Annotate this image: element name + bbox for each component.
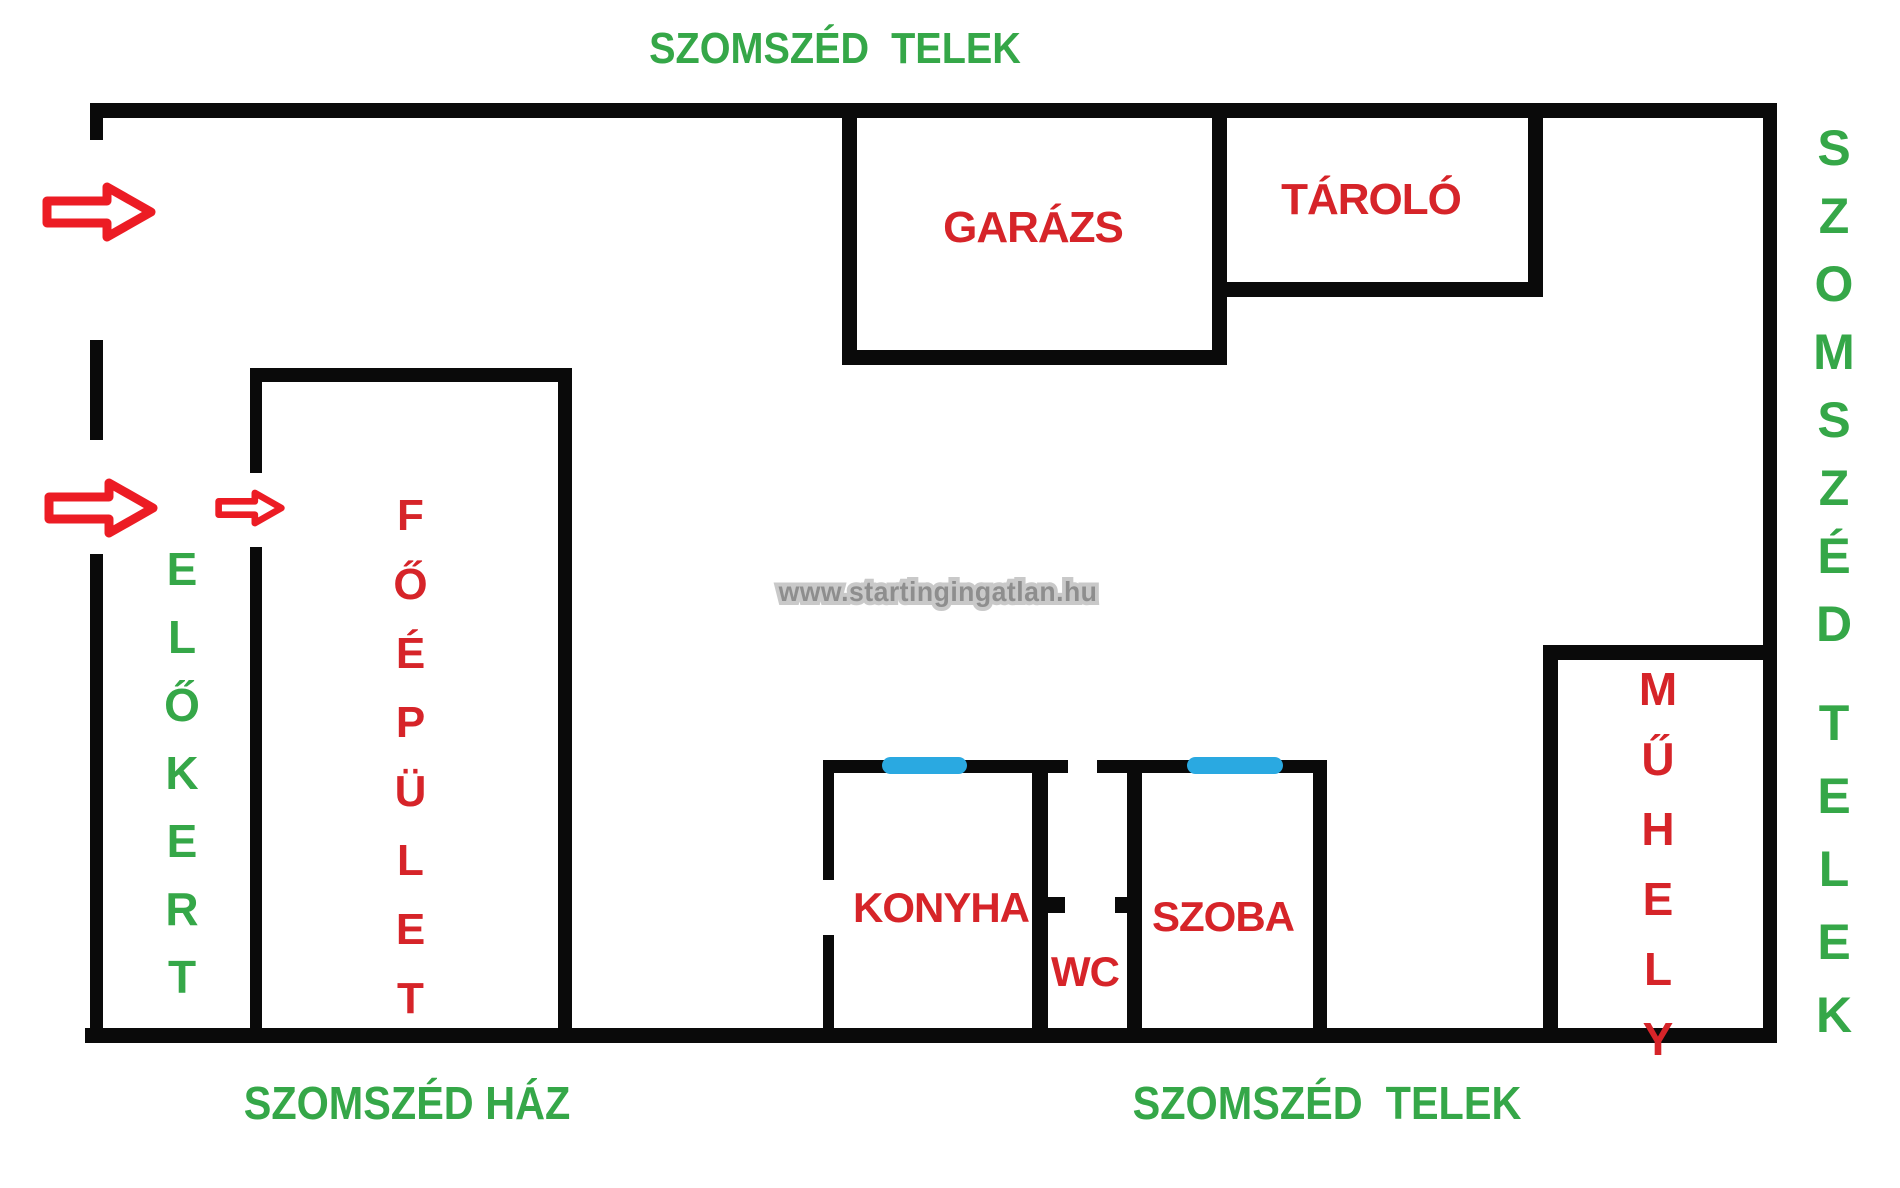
wc-door-jamb-right [1115,897,1127,913]
storage-label: TÁROLÓ [1281,175,1461,225]
room-window-icon [1187,757,1283,774]
storage-wall-right [1528,103,1543,297]
plot-wall-top [90,103,1777,118]
garage-label: GARÁZS [943,203,1123,253]
workshop-label: MŰHELY [1631,663,1685,1083]
front-garden-label: ELŐKERT [155,543,209,1019]
kitchen-label: KONYHA [853,884,1029,932]
main-building-label: FŐÉPÜLET [385,491,435,1043]
neighbor-label-right-word1: SZOMSZÉD [1805,120,1863,664]
main-building-wall-left-upper [250,368,262,473]
kitchen-window-icon [882,757,967,774]
workshop-wall-top [1543,645,1777,660]
neighbor-label-bottom-right: SZOMSZÉD TELEK [1133,1076,1522,1130]
driveway-entrance-right-arrow-icon [40,180,158,244]
kitchen-wall-left-upper [823,760,834,880]
plot-wall-bottom [85,1028,1777,1043]
main-building-door-right-arrow-icon [215,480,285,536]
room-wall-right [1313,760,1327,1028]
neighbor-label-bottom-left: SZOMSZÉD HÁZ [244,1076,571,1130]
plot-wall-left-middle [90,340,103,440]
main-building-wall-top [250,368,572,382]
neighbor-label-right-word2: TELEK [1805,695,1863,1060]
garage-wall-bottom [842,350,1227,365]
plot-wall-left-lower [90,554,103,1043]
workshop-wall-left [1543,645,1558,1028]
watermark-text: www.startingingatlan.hu [779,576,1098,607]
main-building-wall-right [558,368,572,1043]
main-building-wall-left-lower [250,547,262,1043]
living-room-label: SZOBA [1152,893,1294,941]
kitchen-wall-right [1032,760,1048,1028]
wc-door-jamb-left [1048,897,1065,913]
garage-wall-left [842,103,857,365]
room-wall-left [1127,773,1142,1028]
plot-wall-right [1763,103,1777,1043]
watermark: www.startingingatlan.hu www.startinginga… [779,576,1098,608]
garage-wall-right [1212,103,1227,365]
kitchen-wall-left-lower [823,935,834,1028]
site-plan: SZOMSZÉD TELEK SZOMSZÉD HÁZ SZOMSZÉD TEL… [0,0,1900,1188]
wc-label: WC [1051,948,1119,996]
storage-wall-bottom [1212,282,1543,297]
plot-wall-left-upper [90,103,103,140]
pedestrian-entrance-right-arrow-icon [42,476,160,540]
neighbor-label-top: SZOMSZÉD TELEK [649,24,1021,74]
